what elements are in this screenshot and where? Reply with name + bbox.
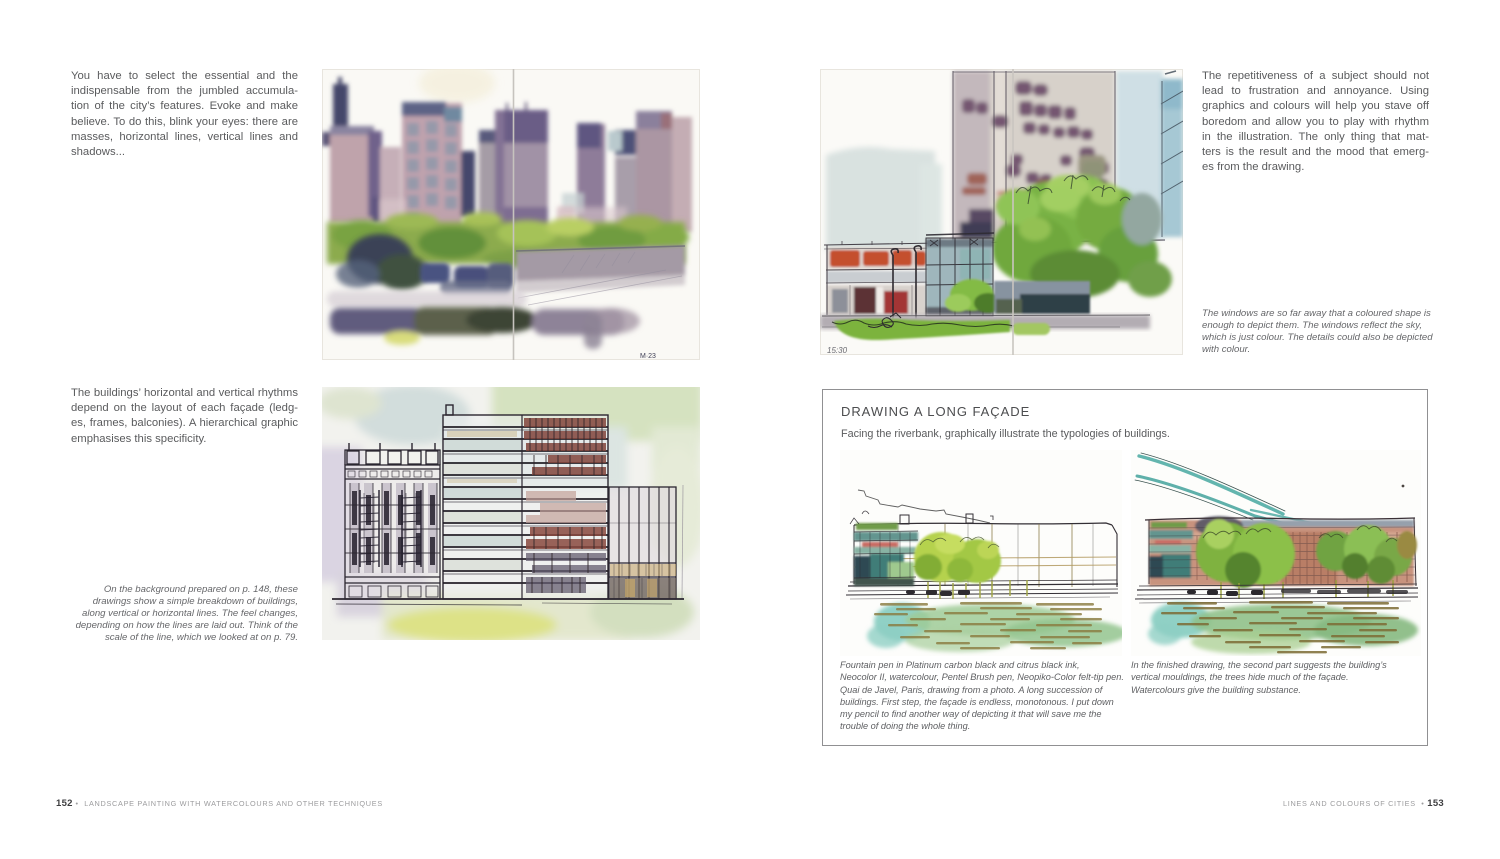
svg-text:15:30: 15:30 [827, 346, 848, 355]
svg-text:M·23: M·23 [640, 353, 656, 360]
